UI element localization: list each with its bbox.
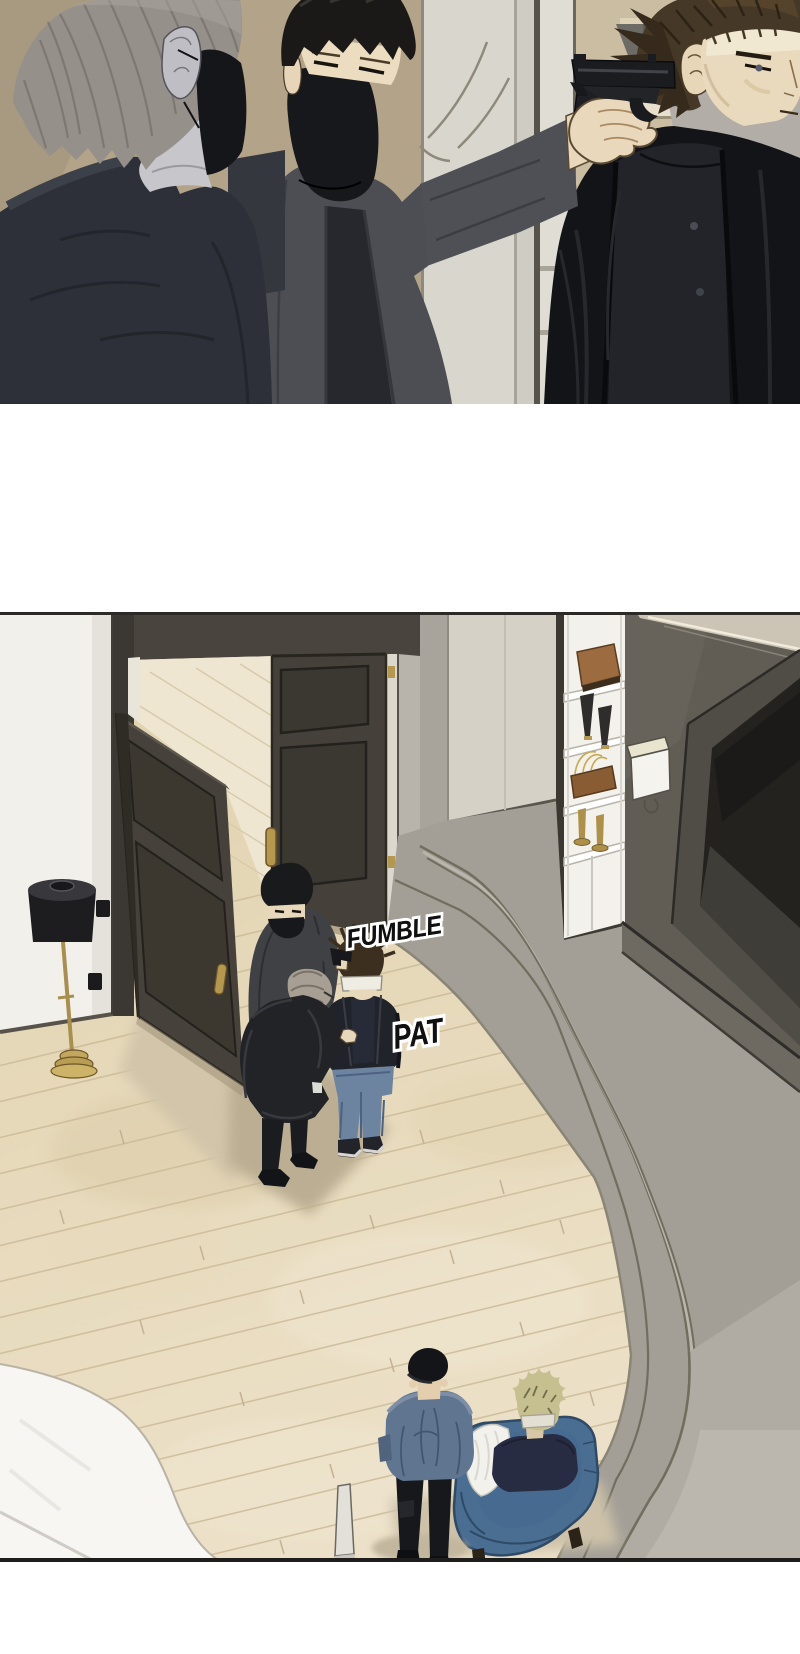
svg-text:PAT: PAT — [390, 1011, 448, 1057]
